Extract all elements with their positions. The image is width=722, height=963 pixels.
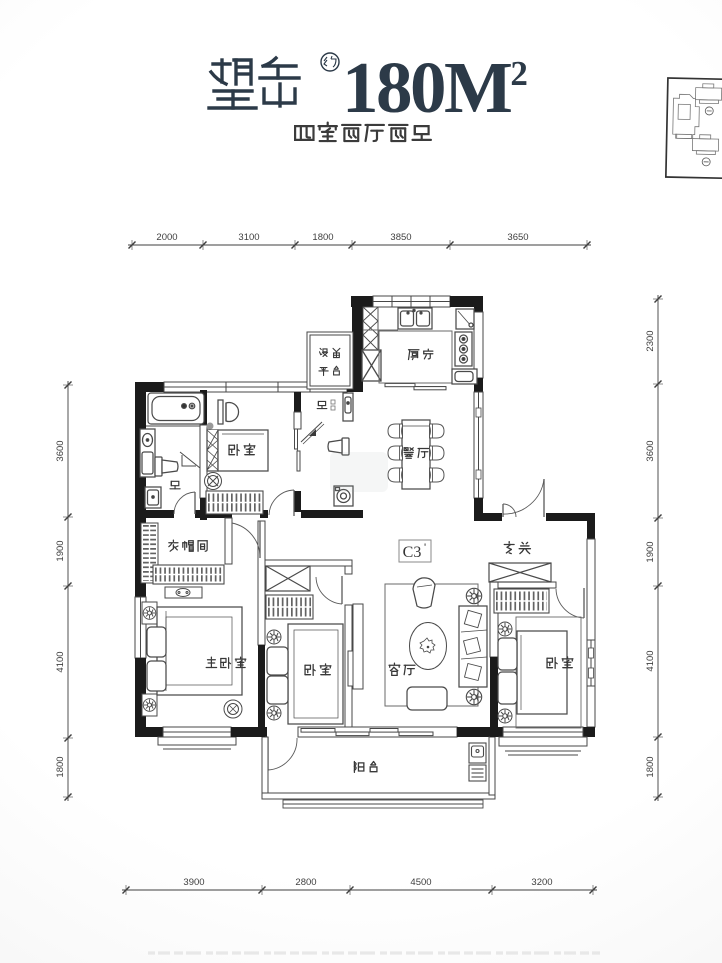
- svg-text:C3: C3: [403, 544, 422, 561]
- svg-text:': ': [424, 542, 426, 554]
